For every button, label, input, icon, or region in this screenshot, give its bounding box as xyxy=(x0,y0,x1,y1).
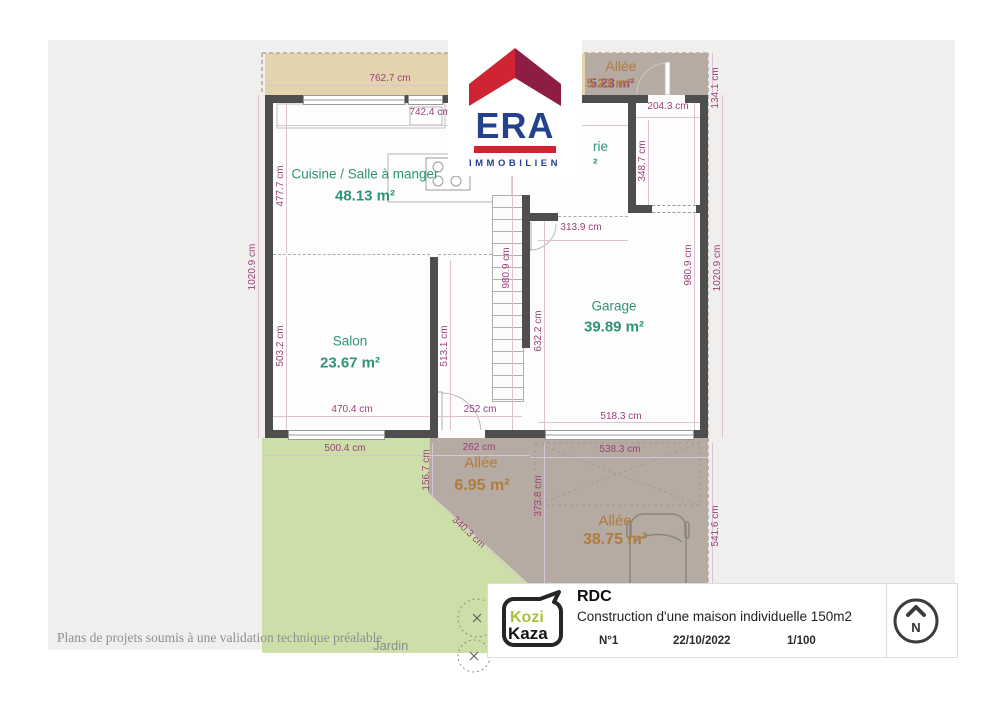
dimension-label: 762.7 cm xyxy=(369,74,410,84)
dimension-line xyxy=(648,120,649,205)
front-door-opening xyxy=(438,430,485,438)
window xyxy=(303,95,405,105)
room-label-alley-entrance: Allée xyxy=(464,456,497,471)
dimension-label: 541.6 cm xyxy=(711,505,721,546)
gate-door xyxy=(637,62,670,95)
dimension-line xyxy=(273,416,430,417)
compass-icon: N xyxy=(891,596,941,646)
dimension-label: 518.3 cm xyxy=(600,412,641,422)
floor-plan-page: { "branding": { "era": { "name": "ERA", … xyxy=(0,0,1000,706)
dimension-label: 980.9 cm xyxy=(684,244,694,285)
room-area-salon: 23.67 m² xyxy=(320,356,380,371)
dimension-label: 470.4 cm xyxy=(331,405,372,415)
wall xyxy=(522,195,530,348)
dimension-label: 348.7 cm xyxy=(638,140,648,181)
room-label-alley-top: Allée xyxy=(605,59,636,73)
wall xyxy=(628,103,636,212)
dimension-line xyxy=(262,455,438,456)
laundry-opening xyxy=(652,205,696,213)
dimension-label: 503.2 cm xyxy=(276,325,286,366)
open-plan-separation xyxy=(438,254,492,255)
plan-number: N°1 xyxy=(599,635,618,647)
plan-date: 22/10/2022 xyxy=(673,635,731,647)
wall xyxy=(485,430,530,438)
kozikaza-line2: Kaza xyxy=(508,624,548,643)
dimension-line xyxy=(530,457,708,458)
room-area-laundry-fragment: ² xyxy=(593,156,598,170)
room-area-kitchen: 48.13 m² xyxy=(335,189,395,204)
dimension-label: 373.8 cm xyxy=(534,475,544,516)
room-area-garage: 39.89 m² xyxy=(584,320,644,335)
window xyxy=(288,430,385,440)
dimension-label: 1020.9 cm xyxy=(248,244,258,291)
room-label-garage: Garage xyxy=(591,299,636,313)
room-label-alley-driveway: Allée xyxy=(598,514,631,529)
dimension-label: 500.4 cm xyxy=(324,444,365,454)
staircase xyxy=(492,195,524,402)
garage-opening-line xyxy=(558,216,628,217)
open-plan-separation xyxy=(273,254,430,255)
dimension-line xyxy=(544,443,545,585)
title-block-divider xyxy=(886,584,887,657)
compass-north-label: N xyxy=(911,620,920,635)
garage-door xyxy=(545,430,694,440)
wall xyxy=(265,95,273,438)
dimension-label: 742.4 cm xyxy=(409,108,450,118)
dimension-line xyxy=(432,443,433,497)
dimension-label: 538.3 cm xyxy=(599,445,640,455)
room-area-alley-top: 5.23 m² xyxy=(587,77,632,90)
dimension-label: 1020.9 cm xyxy=(713,245,723,292)
window xyxy=(408,95,443,105)
dimension-line xyxy=(286,257,287,430)
floor-title: RDC xyxy=(577,588,612,606)
dimension-line xyxy=(538,422,700,423)
room-area-alley-driveway: 38.75 m² xyxy=(583,532,647,548)
burner-icon xyxy=(451,176,461,186)
dimension-label: 134.1 cm xyxy=(711,67,721,108)
room-label-laundry-fragment: rie xyxy=(593,140,608,154)
dimension-line xyxy=(450,260,451,430)
dimension-line xyxy=(694,103,695,430)
era-subtitle: IMMOBILIEN xyxy=(448,158,582,169)
dimension-line xyxy=(258,95,259,438)
dimension-label: 262 cm xyxy=(463,443,496,453)
title-block: Kozi Kaza RDC Construction d'une maison … xyxy=(487,583,958,658)
disclaimer-text: Plans de projets soumis à une validation… xyxy=(57,630,382,646)
dimension-label: 204.3 cm xyxy=(647,102,688,112)
era-logo: ERA IMMOBILIEN xyxy=(448,34,582,176)
room-label-salon: Salon xyxy=(333,334,368,348)
garage-hall-door xyxy=(527,223,556,250)
dimension-line xyxy=(636,117,700,118)
wall xyxy=(430,257,438,438)
kozikaza-logo: Kozi Kaza xyxy=(500,589,566,651)
dimension-line xyxy=(544,217,545,430)
dimension-line xyxy=(538,240,628,241)
dimension-line xyxy=(438,416,522,417)
dimension-label: 156.7 cm xyxy=(422,449,432,490)
dimension-label: 477.7 cm xyxy=(276,165,286,206)
project-title: Construction d'une maison individuelle 1… xyxy=(577,609,852,624)
dimension-label: 632.2 cm xyxy=(534,310,544,351)
era-red-bar xyxy=(474,146,556,153)
plan-scale: 1/100 xyxy=(787,635,816,647)
dimension-label: 252 cm xyxy=(464,405,497,415)
dimension-label: 980.9 cm xyxy=(502,247,512,288)
wall xyxy=(530,213,558,221)
dimension-label: 313.9 cm xyxy=(560,223,601,233)
dimension-label: 513.1 cm xyxy=(440,325,450,366)
wall xyxy=(700,95,708,438)
room-label-kitchen: Cuisine / Salle à manger xyxy=(291,167,438,181)
era-wordmark: ERA xyxy=(448,108,582,144)
room-area-alley-entrance: 6.95 m² xyxy=(454,478,509,494)
